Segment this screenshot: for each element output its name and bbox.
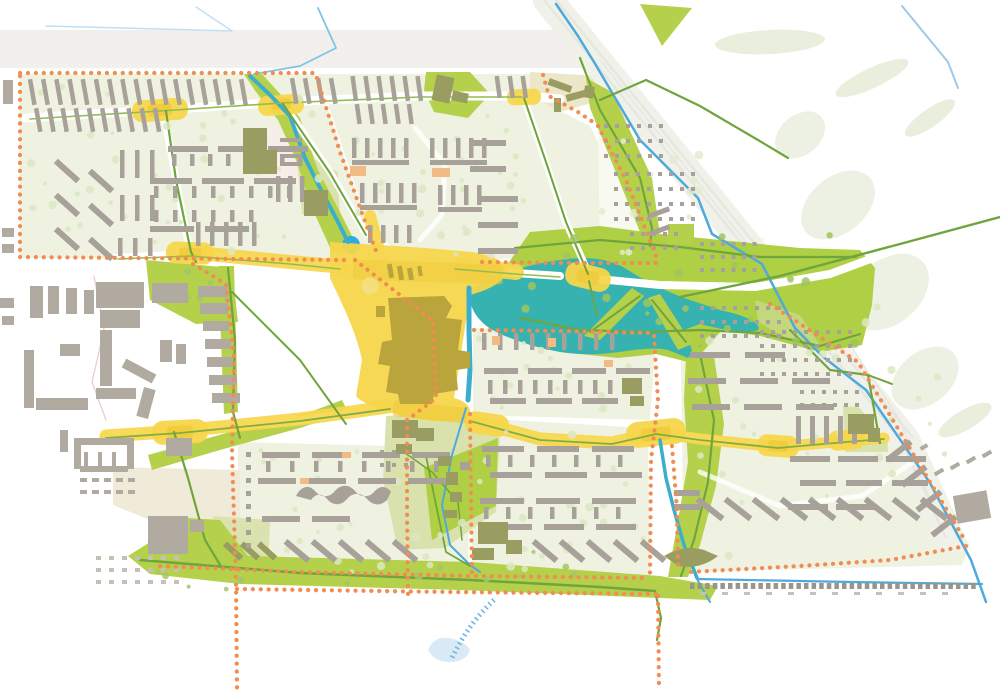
ne-houses-1 (604, 124, 608, 128)
building (416, 428, 434, 441)
sce-r1-stubs (574, 455, 579, 467)
tree (513, 172, 518, 177)
sw-houses-faint (96, 568, 101, 572)
tree (337, 524, 344, 531)
building (492, 336, 500, 345)
scw-r1-stubs (290, 461, 295, 472)
sw-dashes (116, 490, 123, 494)
scw-squares (246, 465, 251, 470)
bottom-existing-row (766, 583, 771, 589)
ne-houses-1 (659, 124, 663, 128)
ec-verts1 (514, 333, 519, 350)
tree (510, 206, 516, 212)
nel-houses-2 (760, 344, 764, 348)
tree (599, 404, 607, 412)
tree (183, 270, 187, 274)
ne-houses-4 (711, 242, 715, 246)
sw-houses-faint (135, 556, 140, 560)
nw-row2-teeth (211, 186, 216, 198)
tree (539, 553, 545, 559)
sw-houses-faint (161, 568, 166, 572)
bottom-existing-row (796, 583, 801, 589)
tree (500, 405, 504, 409)
tree (874, 303, 881, 310)
nel-houses-2 (782, 344, 786, 348)
nel-houses-1 (744, 320, 748, 324)
tree (719, 471, 726, 478)
nel-low1 (790, 456, 830, 462)
ne-houses-2 (625, 217, 629, 221)
tree (513, 153, 519, 159)
nc-jj2b (451, 185, 456, 205)
nel-houses-2 (837, 358, 841, 362)
tree (411, 533, 419, 541)
tree (521, 198, 527, 204)
tree (928, 422, 932, 426)
sce-r3-stubs (506, 507, 511, 519)
tree (521, 305, 529, 313)
nw-row1 (168, 146, 208, 152)
green-ne-patch (668, 224, 694, 244)
sw-houses-faint (174, 556, 179, 560)
bottom-existing-row (781, 583, 786, 589)
tree (316, 530, 320, 534)
building (166, 438, 192, 456)
ne-houses-4 (721, 242, 725, 246)
nc-jj3 (381, 225, 386, 243)
tree (277, 167, 282, 172)
nw-vert2 (150, 195, 155, 221)
tree (555, 386, 560, 391)
ec-slabs1 (572, 368, 606, 374)
tree (459, 178, 464, 183)
nel-houses-3 (822, 390, 826, 394)
ne-houses-1 (615, 124, 619, 128)
tree (611, 465, 617, 471)
nel-houses-2 (771, 330, 775, 334)
tree (504, 430, 508, 434)
nel-houses-2 (815, 344, 819, 348)
scw-squares (246, 452, 251, 457)
nw-row2-teeth (268, 186, 273, 198)
nc-jj1a (391, 138, 396, 158)
sce-r1-stubs (486, 455, 491, 467)
nel-houses-1 (766, 320, 770, 324)
ec-verts2 (563, 380, 568, 394)
ne-houses-2 (647, 217, 651, 221)
nw-vert3 (133, 238, 138, 256)
nel-houses-3 (844, 390, 848, 394)
ne-houses-1 (604, 154, 608, 158)
nc-right-slabs2 (478, 196, 518, 202)
ne-houses-2 (636, 187, 640, 191)
highway-loop (766, 102, 835, 169)
planned-water-arc (452, 600, 494, 658)
nel-houses-2 (793, 330, 797, 334)
nel-houses-2 (837, 330, 841, 334)
sw-existing-bars (98, 452, 102, 466)
sce-r1-stubs (530, 455, 535, 467)
bottom-existing-row (872, 583, 877, 589)
tree (806, 451, 810, 455)
building (604, 360, 613, 367)
nw-vert1 (120, 150, 125, 178)
building (36, 398, 88, 410)
building (203, 321, 229, 331)
nel-jj (824, 416, 829, 444)
ec-slabs2 (582, 398, 618, 404)
tree (862, 318, 870, 326)
green-top-triangle (640, 4, 692, 46)
scw-squares (246, 504, 251, 509)
building (2, 244, 14, 253)
tree (732, 262, 738, 268)
sw-houses-faint (161, 580, 166, 584)
nel-houses-1 (711, 334, 715, 338)
nw-row2 (202, 178, 244, 184)
nel-houses-2 (826, 330, 830, 334)
ec-verts1 (482, 333, 487, 350)
sw-houses-faint (148, 580, 153, 584)
tree (110, 131, 114, 135)
tree (485, 114, 489, 118)
tree (75, 191, 81, 197)
bottom-existing-row (705, 583, 710, 589)
nel-houses-3 (811, 390, 815, 394)
sw-dashes (92, 478, 99, 482)
ne-houses-1 (659, 154, 663, 158)
building (444, 510, 457, 518)
building (583, 85, 595, 99)
nel-slabs1 (690, 352, 730, 358)
nel-low2 (800, 480, 836, 486)
nw-mid-verts (252, 222, 257, 246)
nel-houses-2 (826, 372, 830, 376)
nel-houses-3 (811, 403, 815, 407)
bottom-existing-row (812, 583, 817, 589)
ec-verts1 (594, 333, 599, 350)
scw-grid (380, 450, 384, 454)
corridor-slabs (674, 490, 700, 496)
sw-houses-faint (122, 568, 127, 572)
nel-houses-2 (771, 372, 775, 376)
sce-r3-stubs (594, 507, 599, 519)
tree (43, 181, 47, 185)
tree (655, 318, 663, 326)
ec-slabs2 (490, 398, 526, 404)
ne-houses-2 (658, 217, 662, 221)
sce-r2 (490, 472, 532, 478)
nc-right-slabs2 (478, 222, 518, 228)
ec-verts1 (610, 333, 615, 350)
nel-houses-2 (804, 358, 808, 362)
nel-houses-1 (755, 320, 759, 324)
nel-houses-2 (815, 372, 819, 376)
scw-r1-stubs (386, 461, 391, 472)
building (300, 478, 309, 484)
nel-slabs1 (745, 352, 785, 358)
scw-r2 (408, 478, 446, 484)
nel-houses-1 (777, 320, 781, 324)
nel-houses-1 (711, 306, 715, 310)
building (472, 548, 494, 560)
ne-houses-2 (658, 202, 662, 206)
tree (437, 532, 443, 538)
sce-r2 (545, 472, 587, 478)
nel-houses-1 (766, 334, 770, 338)
sce-r3-stubs (484, 507, 489, 519)
sw-dashes (104, 478, 111, 482)
nc-jj2b (438, 185, 443, 205)
sw-houses-faint (122, 580, 127, 584)
nel-low1 (886, 456, 926, 462)
ne-houses-1 (615, 139, 619, 143)
ne-houses-2 (636, 172, 640, 176)
ne-houses-3 (663, 232, 667, 236)
nel-houses-1 (755, 306, 759, 310)
nel-slabs2 (740, 378, 778, 384)
nel-houses-2 (782, 358, 786, 362)
nc-right-slabs2 (478, 248, 518, 254)
tree (105, 92, 110, 97)
nc-jj1b-bar (430, 160, 487, 165)
ne-houses-2 (691, 187, 695, 191)
ne-houses-1 (637, 154, 641, 158)
tree (162, 572, 169, 579)
building (190, 520, 204, 532)
ec-slabs2 (536, 398, 572, 404)
tree (916, 396, 922, 402)
tree (565, 372, 572, 379)
nw-vert2 (120, 195, 125, 221)
tree (645, 311, 649, 315)
ne-houses-1 (648, 154, 652, 158)
nw-row3-teeth (192, 210, 197, 222)
nw-row1-teeth (208, 154, 213, 166)
bottom-existing-row2 (766, 592, 772, 595)
nel-houses-3 (822, 403, 826, 407)
nel-houses-1 (777, 334, 781, 338)
nel-houses-1 (700, 320, 704, 324)
bottom-existing-row2 (854, 592, 860, 595)
bottom-existing-row (964, 583, 969, 589)
nw-row1-teeth (226, 154, 231, 166)
bottom-existing-row (926, 583, 931, 589)
ne-houses-1 (615, 154, 619, 158)
nw-row2-teeth (249, 186, 254, 198)
bottom-existing-row (933, 583, 938, 589)
ne-houses-3 (630, 246, 634, 250)
tree (725, 552, 733, 560)
building (74, 445, 81, 469)
tree (669, 155, 677, 163)
nc-jj2b (464, 185, 469, 205)
ne-houses-4 (742, 242, 746, 246)
nel-houses-2 (826, 358, 830, 362)
building (48, 286, 59, 314)
nw-row2 (150, 178, 192, 184)
building (30, 286, 43, 318)
sce-r1-stubs (552, 455, 557, 467)
ne-houses-2 (691, 217, 695, 221)
sw-houses-faint (109, 580, 114, 584)
building (100, 310, 140, 328)
nel-houses-3 (833, 403, 837, 407)
tree (942, 451, 947, 456)
scw-squares (246, 543, 251, 548)
sce-r3-stubs (616, 507, 621, 519)
ec-slabs1 (528, 368, 562, 374)
scw-squares (246, 530, 251, 535)
tree (427, 562, 434, 569)
bottom-existing-row (827, 583, 832, 589)
tree (199, 135, 207, 143)
building (24, 350, 34, 408)
building (622, 378, 642, 394)
tree (503, 127, 509, 133)
nel-slabs2 (792, 378, 830, 384)
tree (802, 277, 810, 285)
tree (825, 494, 829, 498)
tree (697, 452, 704, 459)
sw-houses-faint (135, 568, 140, 572)
bottom-existing-row (850, 583, 855, 589)
ne-houses-4 (700, 255, 704, 259)
nw-row3-teeth (173, 210, 178, 222)
tree (261, 459, 267, 465)
nel-houses-1 (700, 334, 704, 338)
tree (315, 174, 323, 182)
nel-houses-3 (800, 390, 804, 394)
tree (630, 209, 639, 218)
tree (293, 507, 298, 512)
ne-houses-1 (648, 124, 652, 128)
bottom-existing-row (804, 583, 809, 589)
tree (29, 204, 36, 211)
building (200, 303, 228, 314)
building (205, 339, 231, 349)
stream-central-teal (468, 288, 470, 400)
nw-row2-teeth (192, 186, 197, 198)
nw-row2-teeth (154, 186, 159, 198)
sw-houses-faint (96, 580, 101, 584)
tree (522, 566, 528, 572)
ne-houses-2 (625, 172, 629, 176)
pink-bars (280, 138, 302, 142)
gp-bottom-tail (655, 591, 661, 640)
building (148, 516, 188, 554)
nw-row3-teeth (230, 210, 235, 222)
tree (562, 564, 569, 571)
nel-houses-3 (844, 403, 848, 407)
ne-houses-2 (647, 172, 651, 176)
tree (422, 553, 429, 560)
se-diag-ticks (966, 456, 977, 464)
tree (437, 564, 444, 571)
ne-houses-2 (647, 187, 651, 191)
sw-dashes (80, 478, 87, 482)
tree (179, 220, 184, 225)
nw-row1-teeth (172, 154, 177, 166)
ne-houses-2 (669, 202, 673, 206)
ne-houses-1 (626, 154, 630, 158)
tree (420, 169, 426, 175)
scw-r1 (262, 452, 300, 458)
scw-r1-stubs (434, 461, 439, 472)
bottom-existing-row (720, 583, 725, 589)
scw-r3 (312, 516, 350, 522)
bottom-existing-row (895, 583, 900, 589)
tree (228, 247, 236, 255)
ne-houses-4 (711, 255, 715, 259)
sw-houses-faint (109, 568, 114, 572)
bottom-existing-row (888, 583, 893, 589)
sce-r3 (592, 498, 636, 504)
scw-r1-stubs (266, 461, 271, 472)
nel-houses-2 (804, 372, 808, 376)
tree (719, 233, 726, 240)
sw-houses-faint (122, 556, 127, 560)
bottom-existing-row (819, 583, 824, 589)
nel-houses-2 (793, 358, 797, 362)
bottom-existing-row (758, 583, 763, 589)
nel-low1 (838, 456, 878, 462)
bottom-existing-row (918, 583, 923, 589)
tree (208, 280, 214, 286)
nel-houses-2 (815, 358, 819, 362)
tree (570, 234, 579, 243)
ec-verts2 (608, 380, 613, 394)
sce-r3 (480, 498, 524, 504)
bottom-existing-row2 (722, 592, 728, 595)
ne-houses-1 (659, 139, 663, 143)
tree (602, 294, 610, 302)
gp-central-west (232, 292, 346, 424)
ec-verts2 (548, 380, 553, 394)
se-diag-ticks (934, 468, 945, 476)
scw-r1-stubs (338, 461, 343, 472)
ec-verts2 (578, 380, 583, 394)
ne-houses-1 (626, 139, 630, 143)
tree (48, 201, 56, 209)
scw-r2 (358, 478, 396, 484)
bottom-existing-row (941, 583, 946, 589)
ne-houses-1 (626, 124, 630, 128)
ne-houses-4 (721, 268, 725, 272)
ne-houses-4 (732, 255, 736, 259)
building (160, 340, 172, 362)
building (396, 444, 412, 454)
tree (643, 299, 652, 308)
nel-houses-3 (855, 403, 859, 407)
nel-houses-2 (848, 358, 852, 362)
building (460, 462, 470, 470)
sce-r3-stubs (572, 507, 577, 519)
tree (458, 519, 466, 527)
sw-houses-faint (135, 580, 140, 584)
sce-r1 (482, 446, 524, 452)
tree (787, 276, 794, 283)
ne-houses-1 (637, 124, 641, 128)
tree (740, 423, 746, 429)
ne-houses-2 (680, 187, 684, 191)
tree (698, 343, 703, 348)
nel-slabs3 (692, 404, 730, 410)
nc-jj1b (456, 138, 461, 158)
tree-blob (832, 52, 913, 104)
tree (934, 374, 941, 381)
sce-r1-stubs (508, 455, 513, 467)
